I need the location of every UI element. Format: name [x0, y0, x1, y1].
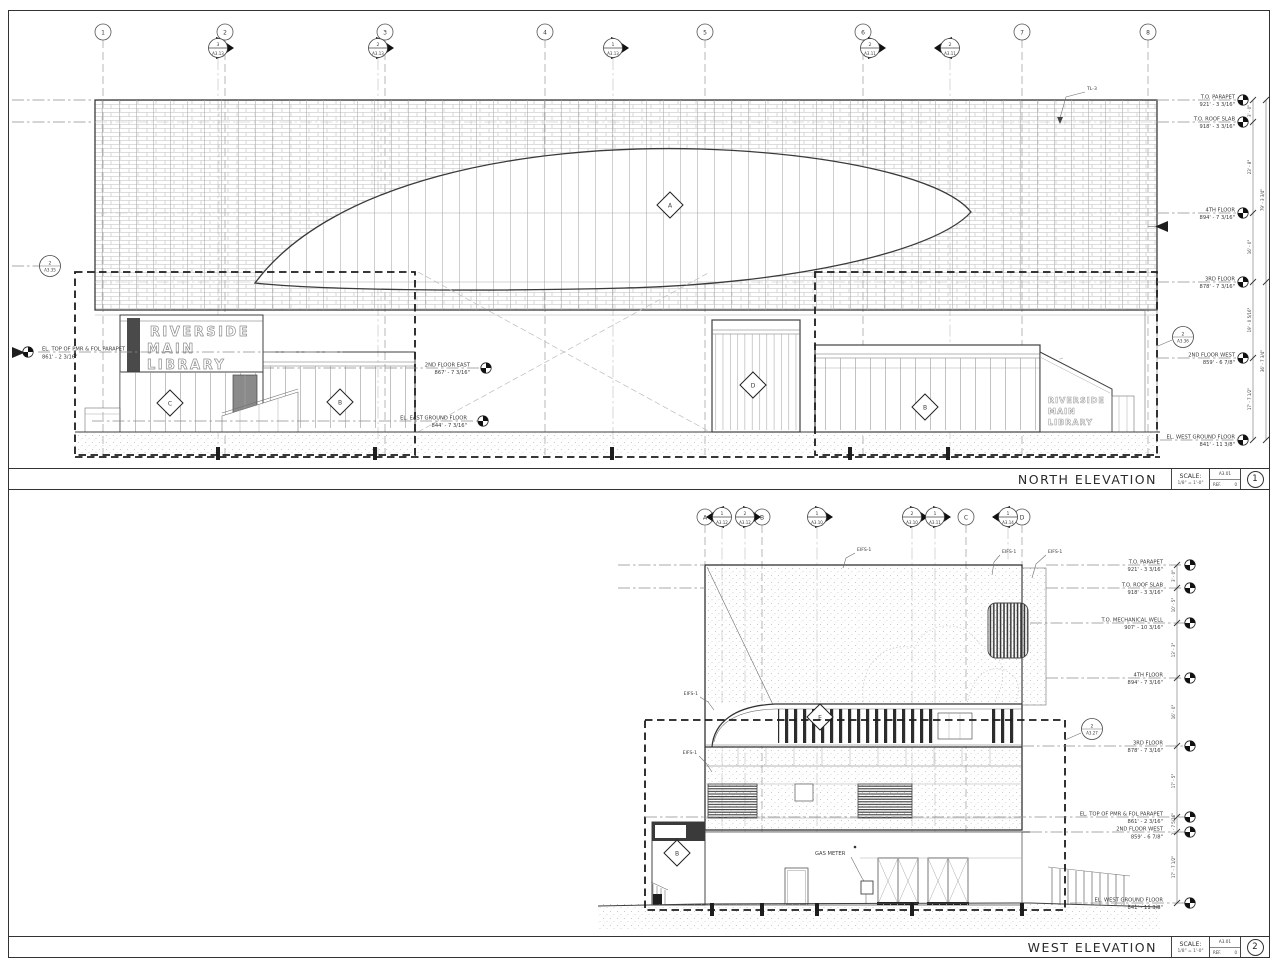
library-sign-line3: LIBRARY — [147, 358, 226, 373]
level-label: 2ND FLOOR EAST — [425, 363, 471, 369]
level-elev: 841' - 11 3/8" — [1128, 905, 1163, 911]
detail-callout-num: 2 — [49, 261, 52, 267]
viewport-number-west: 2 — [1247, 939, 1264, 956]
level-elev: 861' - 2 3/16" — [1128, 819, 1163, 825]
grid-bubble-8: 8 — [1146, 30, 1150, 37]
level-label: EL. TOP OF PMR & FOL PARAPET — [42, 347, 126, 353]
section-marker-num: 3 — [217, 42, 220, 48]
grid-bubble-1: 1 — [101, 30, 105, 37]
level-elev: 859' - 6 7/8" — [1203, 360, 1235, 366]
scale-label: SCALE: — [1180, 473, 1202, 480]
level-label: 4TH FLOOR — [1134, 673, 1164, 679]
west-main-wall: E — [705, 565, 1046, 830]
grid-bubble-4: 4 — [543, 30, 547, 37]
scale-block: SCALE: 1/8" = 1'-0" A3.01 REF. 0 — [1171, 937, 1240, 957]
detail-callout-num: 2 — [1091, 724, 1094, 730]
viewport-number-cell: 2 — [1240, 937, 1269, 957]
keynote-b: B — [675, 851, 679, 858]
level-elev: 861' - 2 3/16" — [42, 355, 77, 361]
level-label: T.O. ROOF SLAB — [1193, 117, 1236, 123]
level-elev: 878' - 7 3/16" — [1128, 748, 1163, 754]
level-label: EL. WEST GROUND FLOOR — [1167, 435, 1236, 441]
sheet-number: A3.01 — [1210, 937, 1240, 948]
scale-value: 1/8" = 1'-0" — [1178, 481, 1204, 486]
west-elevation-drawing: E — [8, 490, 1272, 936]
level-label: T.O. MECHANICAL WELL — [1100, 618, 1163, 624]
level-elev: 844' - 7 3/16" — [432, 423, 467, 429]
library-sign2-line1: RIVERSIDE — [1048, 396, 1105, 405]
north-main-volume: A — [95, 100, 1157, 315]
drawing-sheet: A RIVERSIDE MAIN LIBRARY — [0, 0, 1280, 966]
dim-text: 1' - 7 5/16" — [1171, 813, 1176, 835]
section-marker-sheet: A3.13 — [607, 51, 619, 56]
west-dimensions: 3' - 0" 10' - 5" 13' - 3" 16' - 0" 17' -… — [1171, 562, 1180, 906]
level-elev: 878' - 7 3/16" — [1200, 284, 1235, 290]
dim-text: 19' - 0 5/16" — [1247, 307, 1252, 332]
material-tag-eifs: EIFS-1 — [683, 750, 697, 756]
dim-text: 3' - 0" — [1247, 105, 1252, 117]
library-sign-line1: RIVERSIDE — [150, 325, 250, 340]
dim-text: 3' - 0" — [1171, 570, 1176, 582]
material-tag-eifs: EIFS-1 — [1002, 549, 1016, 555]
section-marker-num: 2 — [744, 511, 747, 517]
north-elevation-drawing: A RIVERSIDE MAIN LIBRARY — [8, 10, 1272, 468]
level-label: 4TH FLOOR — [1206, 208, 1236, 214]
level-elev: 907' - 10 3/16" — [1124, 625, 1163, 631]
north-title-bar: NORTH ELEVATION SCALE: 1/8" = 1'-0" A3.0… — [8, 468, 1270, 490]
dim-text: 23' - 8" — [1247, 160, 1252, 175]
level-elev: 894' - 7 3/16" — [1128, 680, 1163, 686]
level-elev: 894' - 7 3/16" — [1200, 215, 1235, 221]
grid-bubble-5: 5 — [703, 30, 707, 37]
west-title-bar: WEST ELEVATION SCALE: 1/8" = 1'-0" A3.01… — [8, 936, 1270, 958]
library-sign2-line3: LIBRARY — [1048, 418, 1093, 427]
west-ground-floor: B GAS METER — [651, 822, 1130, 905]
section-marker-sheet: A3.13 — [212, 51, 224, 56]
level-label: 2ND FLOOR WEST — [1188, 353, 1236, 359]
north-right-building: B RIVERSIDE MAIN LIBRARY — [815, 310, 1157, 432]
level-elev: 921' - 3 3/16" — [1200, 102, 1235, 108]
west-detail-callout: 2 A3.27 — [1065, 719, 1103, 741]
dim-text: 17' - 7 1/2" — [1171, 856, 1176, 878]
ref-value: 0 — [1234, 950, 1237, 955]
keynote-d: D — [751, 383, 756, 390]
section-marker-sheet: A3.12 — [739, 520, 751, 525]
grid-bubble-c: C — [964, 515, 968, 522]
ref-value: 0 — [1234, 482, 1237, 487]
level-elev: 918' - 3 3/16" — [1128, 590, 1163, 596]
scale-label: SCALE: — [1180, 941, 1202, 948]
material-tag-eifs: EIFS-1 — [1048, 549, 1062, 555]
north-view-title: NORTH ELEVATION — [1018, 472, 1157, 487]
library-sign-line2: MAIN — [147, 342, 196, 357]
north-dimensions: 3' - 0" 23' - 8" 16' - 0" 19' - 0 5/16" … — [1247, 97, 1269, 443]
material-tag-eifs: EIFS-1 — [684, 691, 698, 697]
section-marker-num: 2 — [911, 511, 914, 517]
level-label: T.O. PARAPET — [1200, 95, 1236, 101]
scale-value: 1/8" = 1'-0" — [1178, 949, 1204, 954]
viewport-number-north: 1 — [1247, 471, 1264, 488]
section-marker-sheet: A3.10 — [906, 520, 918, 525]
dim-text: 79' - 3 3/4" — [1260, 189, 1265, 211]
section-marker-num: 1 — [816, 511, 819, 517]
level-label: T.O. ROOF SLAB — [1121, 583, 1164, 589]
section-marker-num: 2 — [949, 42, 952, 48]
section-marker-sheet: A3.11 — [864, 51, 876, 56]
grid-bubble-2: 2 — [223, 30, 227, 37]
ref-label: REF. — [1213, 950, 1221, 955]
dim-text: 16' - 0" — [1247, 240, 1252, 255]
detail-callout-num: 2 — [1182, 332, 1185, 338]
gas-meter-label: GAS METER — [815, 851, 846, 857]
section-marker-num: 2 — [377, 42, 380, 48]
sheet-number: A3.01 — [1210, 469, 1240, 480]
level-label: 2ND FLOOR WEST — [1116, 827, 1164, 833]
level-elev: 841' - 11 3/8" — [1200, 442, 1235, 448]
dim-text: 16' - 0" — [1171, 705, 1176, 720]
dim-text: 10' - 5" — [1171, 598, 1176, 613]
west-ground-strip — [598, 903, 1160, 929]
level-label: EL. EAST GROUND FLOOR — [400, 416, 467, 422]
section-marker-num: 1 — [934, 511, 937, 517]
library-sign2-line2: MAIN — [1048, 407, 1076, 416]
keynote-b2: B — [923, 405, 927, 412]
keynote-c: C — [168, 401, 172, 408]
dim-text: 17' - 7 1/2" — [1247, 388, 1252, 410]
material-tag-eifs: EIFS-1 — [857, 547, 871, 553]
level-elev: 921' - 3 3/16" — [1128, 567, 1163, 573]
ref-label: REF. — [1213, 482, 1221, 487]
dim-text: 36' - 7 3/4" — [1260, 350, 1265, 372]
section-marker-sheet: A3.11 — [929, 520, 941, 525]
level-elev: 918' - 3 3/16" — [1200, 124, 1235, 130]
section-marker-sheet: A3.12 — [716, 520, 728, 525]
section-marker-sheet: A3.13 — [372, 51, 384, 56]
material-tag-tl3: TL-3 — [1086, 86, 1097, 92]
level-elev: 859' - 6 7/8" — [1131, 835, 1163, 841]
grid-bubble-3: 3 — [383, 30, 387, 37]
north-grid-bubbles: 1 2 3 4 5 6 7 8 — [95, 24, 1156, 40]
section-marker-sheet: A3.11 — [944, 51, 956, 56]
grid-bubble-d: D — [1020, 515, 1025, 522]
section-marker-num: 2 — [869, 42, 872, 48]
section-marker-sheet: A3.14 — [1002, 520, 1014, 525]
level-label: 3RD FLOOR — [1133, 741, 1163, 747]
section-marker-sheet: A3.10 — [811, 520, 823, 525]
detail-callout-sheet: A3.27 — [1086, 731, 1098, 736]
dim-text: 13' - 3" — [1171, 643, 1176, 658]
dim-text: 17' - 5" — [1171, 774, 1176, 789]
detail-callout-sheet: A3.36 — [1177, 339, 1189, 344]
north-section-markers: 3 A3.13 2 A3.13 1 A3.13 2 A3.11 2 A3.11 — [209, 37, 960, 59]
north-left-pavilion: RIVERSIDE MAIN LIBRARY C B — [85, 315, 415, 432]
level-label: EL. WEST GROUND FLOOR — [1095, 898, 1164, 904]
west-view-title: WEST ELEVATION — [1028, 940, 1157, 955]
level-label: T.O. PARAPET — [1128, 560, 1164, 566]
level-elev: 867' - 7 3/16" — [435, 370, 470, 376]
level-label: EL. TOP OF PMR & FOL PARAPET — [1080, 812, 1164, 818]
section-marker-num: 1 — [612, 42, 615, 48]
grid-bubble-b: B — [760, 515, 764, 522]
level-label: 3RD FLOOR — [1205, 277, 1235, 283]
section-marker-num: 1 — [1007, 511, 1010, 517]
viewport-number-cell: 1 — [1240, 469, 1269, 489]
keynote-b: B — [338, 400, 342, 407]
north-tower-d: D — [712, 320, 800, 432]
scale-block: SCALE: 1/8" = 1'-0" A3.01 REF. 0 — [1171, 469, 1240, 489]
grid-bubble-6: 6 — [861, 30, 865, 37]
grid-bubble-7: 7 — [1020, 30, 1024, 37]
section-marker-num: 1 — [721, 511, 724, 517]
detail-callout-sheet: A3.35 — [44, 268, 56, 273]
